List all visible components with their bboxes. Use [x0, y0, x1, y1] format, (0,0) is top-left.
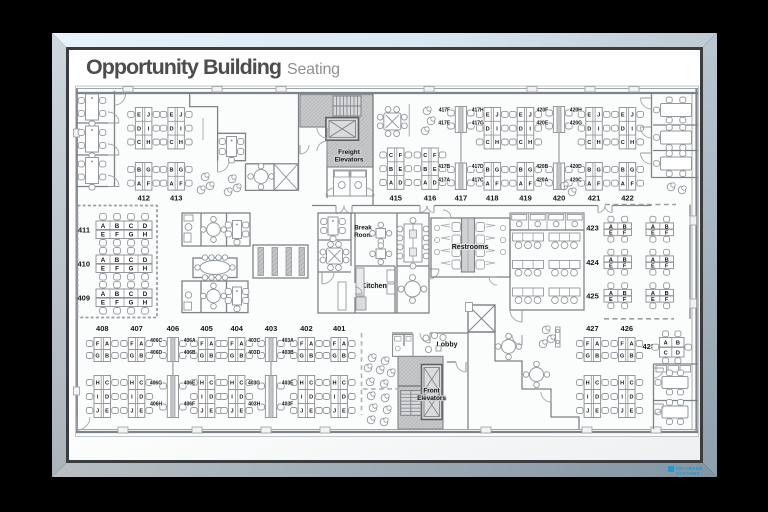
- svg-text:C: C: [486, 140, 490, 146]
- svg-text:421: 421: [588, 194, 601, 203]
- svg-text:E: E: [651, 297, 655, 303]
- svg-text:B: B: [239, 354, 243, 360]
- svg-text:F: F: [623, 264, 627, 270]
- svg-text:D: D: [433, 181, 437, 187]
- svg-text:E: E: [240, 409, 244, 415]
- svg-text:422: 422: [621, 194, 634, 203]
- svg-text:B: B: [519, 168, 523, 174]
- svg-text:E: E: [101, 266, 105, 273]
- svg-text:E: E: [609, 264, 613, 270]
- svg-text:406A: 406A: [184, 338, 196, 344]
- svg-text:C: C: [309, 381, 313, 387]
- svg-text:D: D: [595, 395, 599, 401]
- svg-text:F: F: [147, 181, 151, 187]
- svg-text:B: B: [105, 354, 109, 360]
- svg-text:A: A: [101, 291, 106, 298]
- svg-text:F: F: [179, 181, 183, 187]
- svg-text:417F: 417F: [439, 107, 450, 113]
- svg-text:B: B: [595, 354, 599, 360]
- svg-text:A: A: [239, 342, 243, 348]
- svg-text:423: 423: [586, 224, 599, 233]
- svg-text:A: A: [609, 257, 613, 263]
- svg-text:H: H: [130, 381, 134, 387]
- svg-text:408: 408: [96, 324, 109, 333]
- svg-text:D: D: [486, 126, 490, 132]
- svg-text:407: 407: [130, 324, 143, 333]
- svg-text:J: J: [179, 113, 182, 119]
- svg-text:B: B: [623, 291, 627, 297]
- svg-text:Elevators: Elevators: [335, 157, 364, 164]
- svg-text:A: A: [587, 181, 591, 187]
- svg-text:403C: 403C: [248, 338, 260, 344]
- svg-text:D: D: [169, 126, 173, 132]
- svg-text:D: D: [209, 395, 213, 401]
- svg-text:A: A: [486, 181, 490, 187]
- svg-text:E: E: [587, 113, 591, 119]
- svg-text:426: 426: [621, 324, 634, 333]
- svg-text:C: C: [664, 350, 668, 356]
- svg-text:410: 410: [77, 260, 90, 269]
- svg-text:B: B: [115, 223, 120, 230]
- svg-text:J: J: [597, 113, 600, 119]
- svg-text:E: E: [651, 231, 655, 237]
- svg-text:E: E: [433, 167, 437, 173]
- svg-text:G: G: [129, 232, 134, 239]
- svg-text:D: D: [105, 395, 109, 401]
- svg-text:406F: 406F: [184, 401, 195, 407]
- svg-text:B: B: [665, 257, 669, 263]
- svg-text:404: 404: [230, 324, 243, 333]
- svg-text:406: 406: [167, 324, 180, 333]
- svg-text:D: D: [239, 395, 243, 401]
- svg-text:F: F: [115, 232, 119, 239]
- svg-text:C: C: [129, 223, 134, 230]
- svg-text:402: 402: [300, 324, 313, 333]
- svg-text:H: H: [597, 140, 601, 146]
- svg-text:A: A: [609, 291, 613, 297]
- svg-text:D: D: [587, 126, 591, 132]
- svg-text:A: A: [651, 257, 655, 263]
- svg-text:G: G: [130, 354, 134, 360]
- svg-text:E: E: [519, 113, 523, 119]
- svg-text:C: C: [169, 140, 173, 146]
- svg-text:G: G: [300, 354, 304, 360]
- svg-text:D: D: [137, 126, 141, 132]
- svg-text:B: B: [423, 167, 427, 173]
- svg-text:F: F: [630, 181, 634, 187]
- svg-text:B: B: [137, 168, 141, 174]
- svg-text:J: J: [96, 409, 99, 415]
- svg-text:C: C: [342, 381, 346, 387]
- svg-text:416: 416: [424, 194, 437, 203]
- svg-text:C: C: [595, 381, 599, 387]
- svg-text:403F: 403F: [282, 401, 293, 407]
- svg-text:Front: Front: [423, 388, 440, 395]
- svg-text:A: A: [101, 223, 106, 230]
- svg-text:D: D: [676, 350, 680, 356]
- svg-text:B: B: [621, 168, 625, 174]
- svg-text:412: 412: [137, 194, 150, 203]
- svg-text:E: E: [609, 231, 613, 237]
- svg-text:A: A: [309, 342, 313, 348]
- svg-text:C: C: [389, 153, 393, 159]
- svg-text:419: 419: [519, 194, 532, 203]
- svg-text:420H: 420H: [570, 107, 582, 113]
- svg-text:F: F: [528, 181, 532, 187]
- svg-text:G: G: [200, 354, 204, 360]
- svg-text:H: H: [630, 140, 634, 146]
- svg-text:G: G: [495, 168, 499, 174]
- svg-text:F: F: [115, 266, 119, 273]
- svg-text:C: C: [629, 381, 633, 387]
- svg-text:406G: 406G: [150, 380, 162, 386]
- svg-text:G: G: [597, 168, 601, 174]
- svg-text:J: J: [130, 409, 133, 415]
- svg-text:H: H: [620, 381, 624, 387]
- svg-text:A: A: [389, 181, 393, 187]
- svg-text:A: A: [651, 291, 655, 297]
- svg-text:B: B: [676, 341, 680, 347]
- svg-text:B: B: [169, 168, 173, 174]
- svg-text:C: C: [105, 381, 109, 387]
- svg-text:H: H: [179, 140, 183, 146]
- svg-text:G: G: [620, 354, 624, 360]
- svg-text:B: B: [209, 354, 213, 360]
- svg-text:D: D: [519, 126, 523, 132]
- svg-text:D: D: [143, 223, 148, 230]
- svg-text:J: J: [621, 409, 624, 415]
- svg-text:A: A: [664, 341, 668, 347]
- svg-text:A: A: [209, 342, 213, 348]
- svg-text:E: E: [399, 167, 403, 173]
- svg-text:406H: 406H: [150, 401, 162, 407]
- svg-text:J: J: [333, 409, 336, 415]
- svg-text:F: F: [495, 181, 499, 187]
- svg-text:J: J: [529, 113, 532, 119]
- svg-text:J: J: [300, 409, 303, 415]
- svg-text:H: H: [586, 381, 590, 387]
- svg-text:A: A: [519, 181, 523, 187]
- svg-text:E: E: [209, 409, 213, 415]
- svg-text:H: H: [200, 381, 204, 387]
- svg-text:H: H: [300, 381, 304, 387]
- svg-text:F: F: [623, 297, 627, 303]
- svg-text:C: C: [519, 140, 523, 146]
- svg-text:F: F: [399, 153, 403, 159]
- svg-text:E: E: [342, 409, 346, 415]
- svg-text:H: H: [143, 266, 148, 273]
- svg-text:E: E: [486, 113, 490, 119]
- svg-text:E: E: [621, 113, 625, 119]
- svg-text:Break: Break: [354, 225, 372, 232]
- svg-text:H: H: [143, 300, 148, 307]
- svg-text:F: F: [665, 231, 669, 237]
- svg-text:F: F: [665, 297, 669, 303]
- svg-text:F: F: [665, 264, 669, 270]
- svg-text:415: 415: [389, 194, 402, 203]
- svg-text:J: J: [147, 113, 150, 119]
- svg-text:E: E: [309, 409, 313, 415]
- svg-text:403A: 403A: [282, 338, 294, 344]
- svg-text:G: G: [630, 168, 634, 174]
- svg-text:Restrooms: Restrooms: [452, 244, 489, 251]
- svg-text:Elevators: Elevators: [417, 395, 446, 402]
- svg-text:E: E: [101, 232, 105, 239]
- svg-text:F: F: [130, 342, 134, 348]
- svg-text:F: F: [586, 342, 590, 348]
- svg-text:E: E: [595, 409, 599, 415]
- svg-text:E: E: [170, 113, 174, 119]
- svg-text:B: B: [629, 354, 633, 360]
- svg-text:420C: 420C: [570, 177, 582, 183]
- svg-text:F: F: [300, 342, 304, 348]
- svg-text:F: F: [96, 342, 100, 348]
- svg-text:D: D: [139, 395, 143, 401]
- svg-text:D: D: [629, 395, 633, 401]
- svg-text:E: E: [630, 409, 634, 415]
- svg-text:417H: 417H: [472, 107, 484, 113]
- svg-text:A: A: [105, 342, 109, 348]
- svg-text:420: 420: [553, 194, 566, 203]
- svg-text:G: G: [146, 168, 150, 174]
- svg-text:G: G: [332, 354, 336, 360]
- svg-text:D: D: [143, 291, 148, 298]
- svg-text:B: B: [623, 257, 627, 263]
- svg-text:420B: 420B: [536, 164, 548, 170]
- svg-text:D: D: [342, 395, 346, 401]
- svg-text:J: J: [230, 409, 233, 415]
- svg-text:420G: 420G: [570, 120, 582, 126]
- svg-text:E: E: [139, 409, 143, 415]
- svg-text:409: 409: [77, 294, 90, 303]
- svg-text:F: F: [230, 342, 234, 348]
- svg-text:406D: 406D: [150, 350, 162, 356]
- svg-text:C: C: [129, 257, 134, 264]
- svg-text:F: F: [115, 300, 119, 307]
- svg-text:C: C: [423, 153, 427, 159]
- svg-text:420F: 420F: [537, 107, 548, 113]
- svg-text:417E: 417E: [438, 120, 450, 126]
- svg-text:H: H: [332, 381, 336, 387]
- svg-text:B: B: [309, 354, 313, 360]
- svg-text:Kitchen: Kitchen: [361, 283, 387, 290]
- svg-text:G: G: [129, 266, 134, 273]
- svg-text:418: 418: [486, 194, 499, 203]
- svg-text:D: D: [621, 126, 625, 132]
- svg-text:C: C: [209, 381, 213, 387]
- svg-text:A: A: [423, 181, 427, 187]
- svg-text:H: H: [146, 140, 150, 146]
- svg-text:E: E: [137, 113, 141, 119]
- svg-text:403B: 403B: [282, 350, 294, 356]
- svg-text:B: B: [486, 168, 490, 174]
- svg-text:420D: 420D: [570, 164, 582, 170]
- svg-text:F: F: [333, 342, 337, 348]
- svg-text:A: A: [595, 342, 599, 348]
- svg-text:417D: 417D: [472, 164, 484, 170]
- svg-text:A: A: [629, 342, 633, 348]
- svg-text:J: J: [495, 113, 498, 119]
- svg-text:403H: 403H: [248, 401, 260, 407]
- svg-text:Freight: Freight: [338, 149, 361, 156]
- svg-text:H: H: [143, 232, 148, 239]
- svg-text:406C: 406C: [150, 338, 162, 344]
- svg-text:405: 405: [200, 324, 213, 333]
- svg-text:420A: 420A: [536, 177, 548, 183]
- svg-text:A: A: [621, 181, 625, 187]
- svg-text:G: G: [230, 354, 234, 360]
- svg-text:H: H: [528, 140, 532, 146]
- svg-text:B: B: [665, 224, 669, 230]
- svg-text:C: C: [139, 381, 143, 387]
- svg-text:H: H: [230, 381, 234, 387]
- svg-text:417B: 417B: [438, 164, 450, 170]
- svg-text:425: 425: [586, 292, 599, 301]
- svg-text:417: 417: [455, 194, 468, 203]
- svg-text:D: D: [143, 257, 148, 264]
- svg-text:417G: 417G: [472, 120, 484, 126]
- svg-text:B: B: [139, 354, 143, 360]
- svg-text:E: E: [651, 264, 655, 270]
- svg-text:C: C: [621, 140, 625, 146]
- svg-text:A: A: [342, 342, 346, 348]
- svg-text:420E: 420E: [537, 120, 549, 126]
- svg-text:B: B: [587, 168, 591, 174]
- svg-text:403G: 403G: [248, 380, 260, 386]
- svg-text:406B: 406B: [184, 350, 196, 356]
- svg-text:H: H: [96, 381, 100, 387]
- svg-text:417A: 417A: [438, 177, 450, 183]
- svg-text:C: C: [239, 381, 243, 387]
- svg-text:H: H: [495, 140, 499, 146]
- svg-text:F: F: [597, 181, 601, 187]
- svg-text:B: B: [115, 257, 120, 264]
- svg-text:406E: 406E: [184, 380, 196, 386]
- svg-text:403D: 403D: [248, 350, 260, 356]
- svg-text:A: A: [169, 181, 173, 187]
- svg-text:F: F: [620, 342, 624, 348]
- svg-text:A: A: [651, 224, 655, 230]
- svg-text:D: D: [309, 395, 313, 401]
- svg-text:F: F: [433, 153, 437, 159]
- svg-text:G: G: [179, 168, 183, 174]
- svg-text:A: A: [139, 342, 143, 348]
- svg-text:C: C: [587, 140, 591, 146]
- svg-text:427: 427: [586, 324, 599, 333]
- svg-text:C: C: [129, 291, 134, 298]
- svg-text:B: B: [389, 167, 393, 173]
- svg-text:G: G: [528, 168, 532, 174]
- svg-text:D: D: [398, 181, 402, 187]
- svg-text:E: E: [101, 300, 105, 307]
- svg-text:B: B: [342, 354, 346, 360]
- svg-text:403: 403: [265, 324, 278, 333]
- svg-text:A: A: [101, 257, 106, 264]
- svg-text:E: E: [609, 297, 613, 303]
- svg-text:J: J: [586, 409, 589, 415]
- svg-text:G: G: [586, 354, 590, 360]
- svg-text:J: J: [200, 409, 203, 415]
- svg-text:F: F: [200, 342, 204, 348]
- svg-text:411: 411: [78, 226, 90, 235]
- svg-text:413: 413: [170, 194, 183, 203]
- svg-text:403E: 403E: [282, 380, 294, 386]
- svg-text:J: J: [631, 113, 634, 119]
- svg-text:F: F: [623, 231, 627, 237]
- svg-text:B: B: [665, 291, 669, 297]
- svg-text:417C: 417C: [472, 177, 484, 183]
- svg-text:B: B: [115, 291, 120, 298]
- svg-text:A: A: [137, 181, 141, 187]
- svg-text:G: G: [129, 300, 134, 307]
- svg-text:424: 424: [586, 258, 599, 267]
- svg-text:C: C: [137, 140, 141, 146]
- svg-text:A: A: [609, 224, 613, 230]
- svg-text:401: 401: [333, 324, 346, 333]
- svg-text:B: B: [623, 224, 627, 230]
- svg-text:G: G: [95, 354, 99, 360]
- svg-text:E: E: [105, 409, 109, 415]
